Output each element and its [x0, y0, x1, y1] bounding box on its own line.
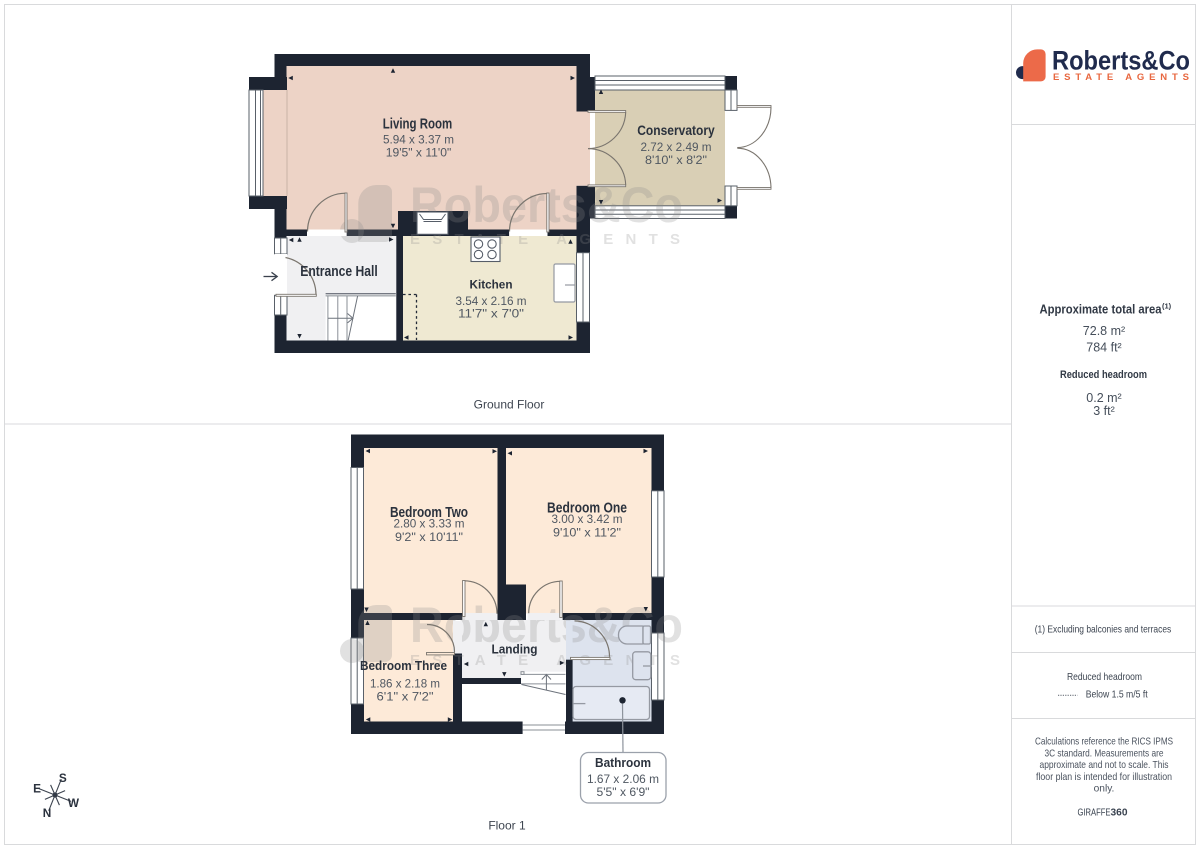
svg-text:Reduced headroom: Reduced headroom — [1067, 671, 1142, 683]
svg-text:Conservatory: Conservatory — [637, 123, 715, 138]
svg-text:9'10" x 11'2": 9'10" x 11'2" — [553, 526, 621, 540]
svg-text:784 ft²: 784 ft² — [1086, 340, 1121, 354]
svg-text:Landing: Landing — [492, 643, 538, 657]
svg-text:Roberts&Co: Roberts&Co — [1052, 46, 1190, 76]
svg-text:Bathroom: Bathroom — [595, 755, 651, 770]
svg-text:19'5" x 11'0": 19'5" x 11'0" — [386, 146, 452, 160]
svg-text:(1) Excluding balconies and te: (1) Excluding balconies and terraces — [1035, 625, 1172, 636]
svg-text:W: W — [68, 796, 80, 810]
svg-text:2.80 x 3.33 m: 2.80 x 3.33 m — [394, 517, 465, 531]
svg-text:2.72 x 2.49 m: 2.72 x 2.49 m — [641, 140, 712, 154]
svg-text:5'5" x 6'9": 5'5" x 6'9" — [597, 785, 650, 799]
svg-text:360: 360 — [1111, 807, 1128, 819]
svg-text:only.: only. — [1094, 784, 1115, 795]
svg-text:Kitchen: Kitchen — [470, 278, 513, 292]
svg-text:N: N — [43, 806, 52, 820]
svg-text:Bedroom Three: Bedroom Three — [360, 659, 447, 673]
svg-text:9'2" x 10'11": 9'2" x 10'11" — [395, 530, 463, 544]
svg-text:GIRAFFE: GIRAFFE — [1078, 807, 1111, 819]
svg-text:S: S — [59, 771, 67, 785]
svg-text:Approximate total area: Approximate total area — [1040, 301, 1163, 316]
svg-text:3 ft²: 3 ft² — [1093, 404, 1115, 418]
svg-text:3C standard. Measurements are: 3C standard. Measurements are — [1045, 748, 1164, 759]
svg-text:approximate and not to scale.: approximate and not to scale. This — [1040, 760, 1169, 771]
svg-text:floor plan is intended for ill: floor plan is intended for illustration — [1036, 772, 1172, 783]
svg-text:72.8 m²: 72.8 m² — [1083, 324, 1125, 338]
svg-text:Entrance Hall: Entrance Hall — [300, 264, 378, 280]
svg-text:Below 1.5 m/5 ft: Below 1.5 m/5 ft — [1086, 689, 1148, 701]
svg-text:Calculations reference the RIC: Calculations reference the RICS IPMS — [1035, 737, 1173, 748]
svg-text:Living Room: Living Room — [383, 117, 453, 133]
svg-text:11'7" x 7'0": 11'7" x 7'0" — [458, 306, 524, 320]
svg-text:5.94 x 3.37 m: 5.94 x 3.37 m — [383, 133, 454, 147]
svg-text:(1): (1) — [1162, 302, 1172, 311]
svg-text:Reduced headroom: Reduced headroom — [1060, 369, 1147, 381]
svg-text:E: E — [33, 782, 41, 796]
svg-text:1.86 x 2.18 m: 1.86 x 2.18 m — [370, 676, 440, 690]
svg-text:Floor 1: Floor 1 — [488, 819, 526, 833]
svg-text:1.67 x 2.06 m: 1.67 x 2.06 m — [587, 772, 659, 786]
svg-text:3.00 x 3.42 m: 3.00 x 3.42 m — [552, 512, 623, 526]
svg-text:6'1" x 7'2": 6'1" x 7'2" — [377, 690, 434, 704]
svg-text:Ground Floor: Ground Floor — [474, 398, 545, 412]
svg-text:8'10" x 8'2": 8'10" x 8'2" — [645, 153, 707, 167]
